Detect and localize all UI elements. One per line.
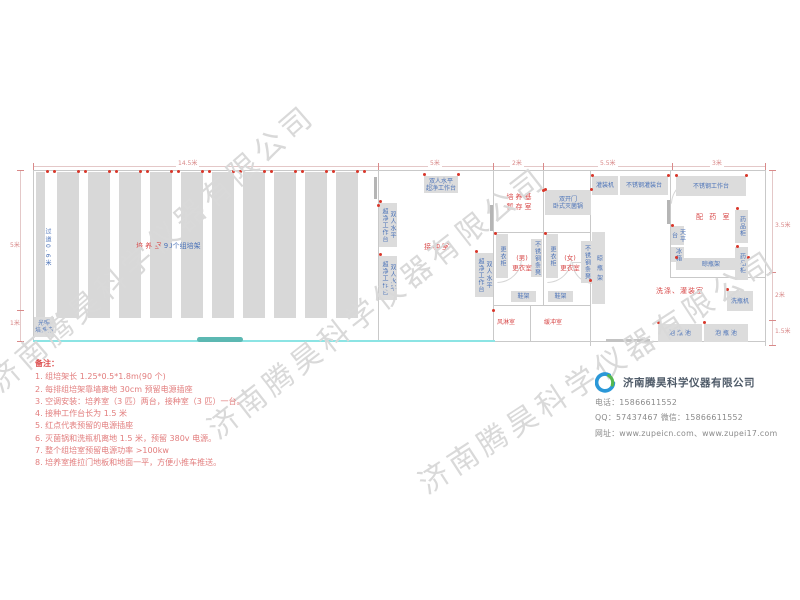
- dimension-tick: [769, 170, 776, 171]
- outlet-dot: [589, 279, 592, 282]
- dimension-tick: [378, 163, 379, 170]
- dimension-tick: [672, 163, 673, 170]
- room-label: 洗涤、灌装室: [656, 286, 704, 296]
- outlet-dot: [270, 170, 273, 173]
- outlet-dot: [667, 174, 670, 177]
- dimension-tick: [33, 163, 34, 170]
- company-website: 网址：www.zupeicn.com、www.zupei17.com: [595, 428, 777, 439]
- outlet-dot: [457, 173, 460, 176]
- note-item: 8. 培养室推拉门地板和地面一平，方便小推车推送。: [35, 457, 244, 469]
- floor-plan-sheet: 双人水平超净工作台双开门卧式灭菌锅灌装机不锈钢灌装台不锈钢工作台晾瓶架鞋架鞋架泡…: [0, 0, 800, 600]
- dimension-label: 3米: [710, 158, 724, 167]
- outlet-dot: [494, 232, 497, 235]
- dimension-tick: [493, 163, 494, 170]
- outlet-dot: [239, 170, 242, 173]
- note-item: 3. 空调安装：培养室（3 匹）两台，接种室（3 匹）一台。: [35, 396, 244, 408]
- equipment-box: 光照培养箱: [34, 317, 54, 337]
- company-logo-icon: [595, 372, 616, 393]
- dimension-label: 5米: [10, 240, 20, 249]
- note-item: 6. 灭菌锅和洗瓶机离地 1.5 米，预留 380v 电源。: [35, 433, 244, 445]
- notes-title: 备注：: [35, 358, 244, 370]
- note-item: 5. 红点代表预留的电源插座: [35, 420, 244, 432]
- outlet-dot: [84, 170, 87, 173]
- outlet-dot: [475, 250, 478, 253]
- wall: [530, 305, 531, 342]
- wall: [667, 200, 670, 224]
- culture-rack-bar: [88, 172, 110, 318]
- equipment-box: 泡 瓶 池: [704, 324, 748, 342]
- equipment-box: 鞋架: [548, 291, 573, 302]
- wall: [765, 170, 766, 346]
- note-item: 7. 整个组培室预留电源功率 >100kw: [35, 445, 244, 457]
- outlet-dot: [53, 170, 56, 173]
- equipment-box: 冰箱: [671, 247, 684, 262]
- dimension-line-top: [33, 166, 766, 167]
- outlet-dot: [377, 204, 380, 207]
- sliding-door-track: [33, 340, 495, 342]
- wall: [374, 177, 377, 199]
- outlet-dot: [232, 170, 235, 173]
- room-label: (女)更衣室: [554, 253, 586, 273]
- equipment-box: 不锈钢灌装台: [620, 176, 668, 195]
- dimension-label: 2米: [775, 290, 785, 299]
- culture-rack-bar: [57, 172, 79, 318]
- outlet-dot: [675, 174, 678, 177]
- dimension-tick: [769, 272, 776, 273]
- floor-plan: 双人水平超净工作台双开门卧式灭菌锅灌装机不锈钢灌装台不锈钢工作台晾瓶架鞋架鞋架泡…: [0, 0, 800, 600]
- notes-items: 1. 组培架长 1.25*0.5*1.8m(90 个)2. 每排组培架靠墙离地 …: [35, 371, 244, 469]
- outlet-dot: [146, 170, 149, 173]
- dimension-label: 3.5米: [775, 220, 791, 229]
- outlet-dot: [332, 170, 335, 173]
- equipment-box: 灌装机: [592, 176, 618, 195]
- dimension-tick: [769, 320, 776, 321]
- outlet-dot: [77, 170, 80, 173]
- dimension-line-left: [20, 170, 21, 341]
- outlet-dot: [301, 170, 304, 173]
- company-name: 济南腾昊科学仪器有限公司: [623, 375, 755, 390]
- outlet-dot: [736, 245, 739, 248]
- dimension-label: 2米: [510, 158, 524, 167]
- wall: [606, 339, 650, 342]
- outlet-dot: [423, 173, 426, 176]
- outlet-dot: [492, 309, 495, 312]
- outlet-dot: [726, 288, 729, 291]
- culture-rack-bar: [274, 172, 296, 318]
- equipment-box: 双人水平超净工作台: [379, 203, 397, 247]
- wall: [493, 305, 591, 306]
- culture-rack-bar: [305, 172, 327, 318]
- equipment-box: 药品柜: [735, 247, 748, 280]
- culture-rack-bar: [212, 172, 234, 318]
- outlet-dot: [363, 170, 366, 173]
- notes-block: 备注： 1. 组培架长 1.25*0.5*1.8m(90 个)2. 每排组培架靠…: [35, 358, 244, 470]
- outlet-dot: [747, 256, 750, 259]
- company-phone: 电话：15866611552: [595, 397, 777, 408]
- equipment-box: 双人水平超净工作台: [379, 256, 397, 300]
- equipment-box: 天平台: [671, 226, 684, 245]
- outlet-dot: [544, 232, 547, 235]
- outlet-dot: [208, 170, 211, 173]
- wall: [33, 170, 766, 171]
- room-label: 缓冲室: [544, 318, 562, 328]
- outlet-dot: [170, 170, 173, 173]
- outlet-dot: [325, 170, 328, 173]
- equipment-box: 双人水平超净工作台: [424, 176, 458, 193]
- equipment-box: 双人水平超净工作台: [475, 253, 493, 297]
- wall: [493, 232, 591, 233]
- dimension-label: 14.5米: [176, 158, 199, 167]
- outlet-dot: [201, 170, 204, 173]
- outlet-dot: [745, 174, 748, 177]
- outlet-dot: [115, 170, 118, 173]
- sliding-door: [197, 337, 243, 342]
- outlet-dot: [590, 188, 593, 191]
- outlet-dot: [263, 170, 266, 173]
- room-label: 配 药 室: [696, 212, 731, 222]
- dimension-tick: [17, 310, 24, 311]
- dimension-tick: [17, 341, 24, 342]
- company-block: 济南腾昊科学仪器有限公司 电话：15866611552 QQ：57437467 …: [595, 372, 777, 439]
- equipment-box: 鞋架: [511, 291, 536, 302]
- outlet-dot: [736, 207, 739, 210]
- company-qq-wechat: QQ：57437467 微信：15866611552: [595, 412, 777, 423]
- outlet-dot: [379, 200, 382, 203]
- dimension-label: 1米: [10, 318, 20, 327]
- equipment-box: 药品柜: [735, 210, 748, 243]
- outlet-dot: [657, 321, 660, 324]
- dimension-tick: [765, 163, 766, 170]
- outlet-dot: [703, 321, 706, 324]
- culture-rack-bar: [243, 172, 265, 318]
- room-label: 培养基暂存室: [497, 192, 543, 212]
- dimension-tick: [543, 163, 544, 170]
- dimension-label: 5.5米: [598, 158, 618, 167]
- outlet-dot: [294, 170, 297, 173]
- wall: [493, 170, 494, 342]
- equipment-box: 洗瓶机: [727, 291, 753, 311]
- outlet-dot: [356, 170, 359, 173]
- dimension-tick: [769, 345, 776, 346]
- equipment-box: 晾 瓶 架: [592, 232, 605, 304]
- note-item: 4. 接种工作台长为 1.5 米: [35, 408, 244, 420]
- note-item: 1. 组培架长 1.25*0.5*1.8m(90 个): [35, 371, 244, 383]
- equipment-box: 双开门卧式灭菌锅: [545, 190, 591, 215]
- outlet-dot: [591, 174, 594, 177]
- aisle-label: 过道0.6米: [42, 228, 52, 268]
- wall: [670, 277, 766, 278]
- room-label: 风淋室: [497, 318, 515, 328]
- outlet-dot: [46, 170, 49, 173]
- outlet-dot: [671, 224, 674, 227]
- culture-rack-bar: [336, 172, 358, 318]
- outlet-dot: [675, 256, 678, 259]
- dimension-label: 1.5米: [775, 326, 791, 335]
- outlet-dot: [177, 170, 180, 173]
- dimension-label: 5米: [428, 158, 442, 167]
- outlet-dot: [139, 170, 142, 173]
- dimension-tick: [17, 170, 24, 171]
- wall: [490, 205, 493, 231]
- culture-room-label: 培 养 室 90个组培架: [136, 241, 201, 251]
- outlet-dot: [108, 170, 111, 173]
- note-item: 2. 每排组培架靠墙离地 30cm 预留电源插座: [35, 384, 244, 396]
- equipment-box: 不锈钢工作台: [676, 176, 746, 196]
- outlet-dot: [379, 253, 382, 256]
- equipment-box: 泡 瓶 池: [658, 324, 702, 342]
- room-label: (男)更衣室: [506, 253, 538, 273]
- room-label: 接种室: [424, 242, 451, 252]
